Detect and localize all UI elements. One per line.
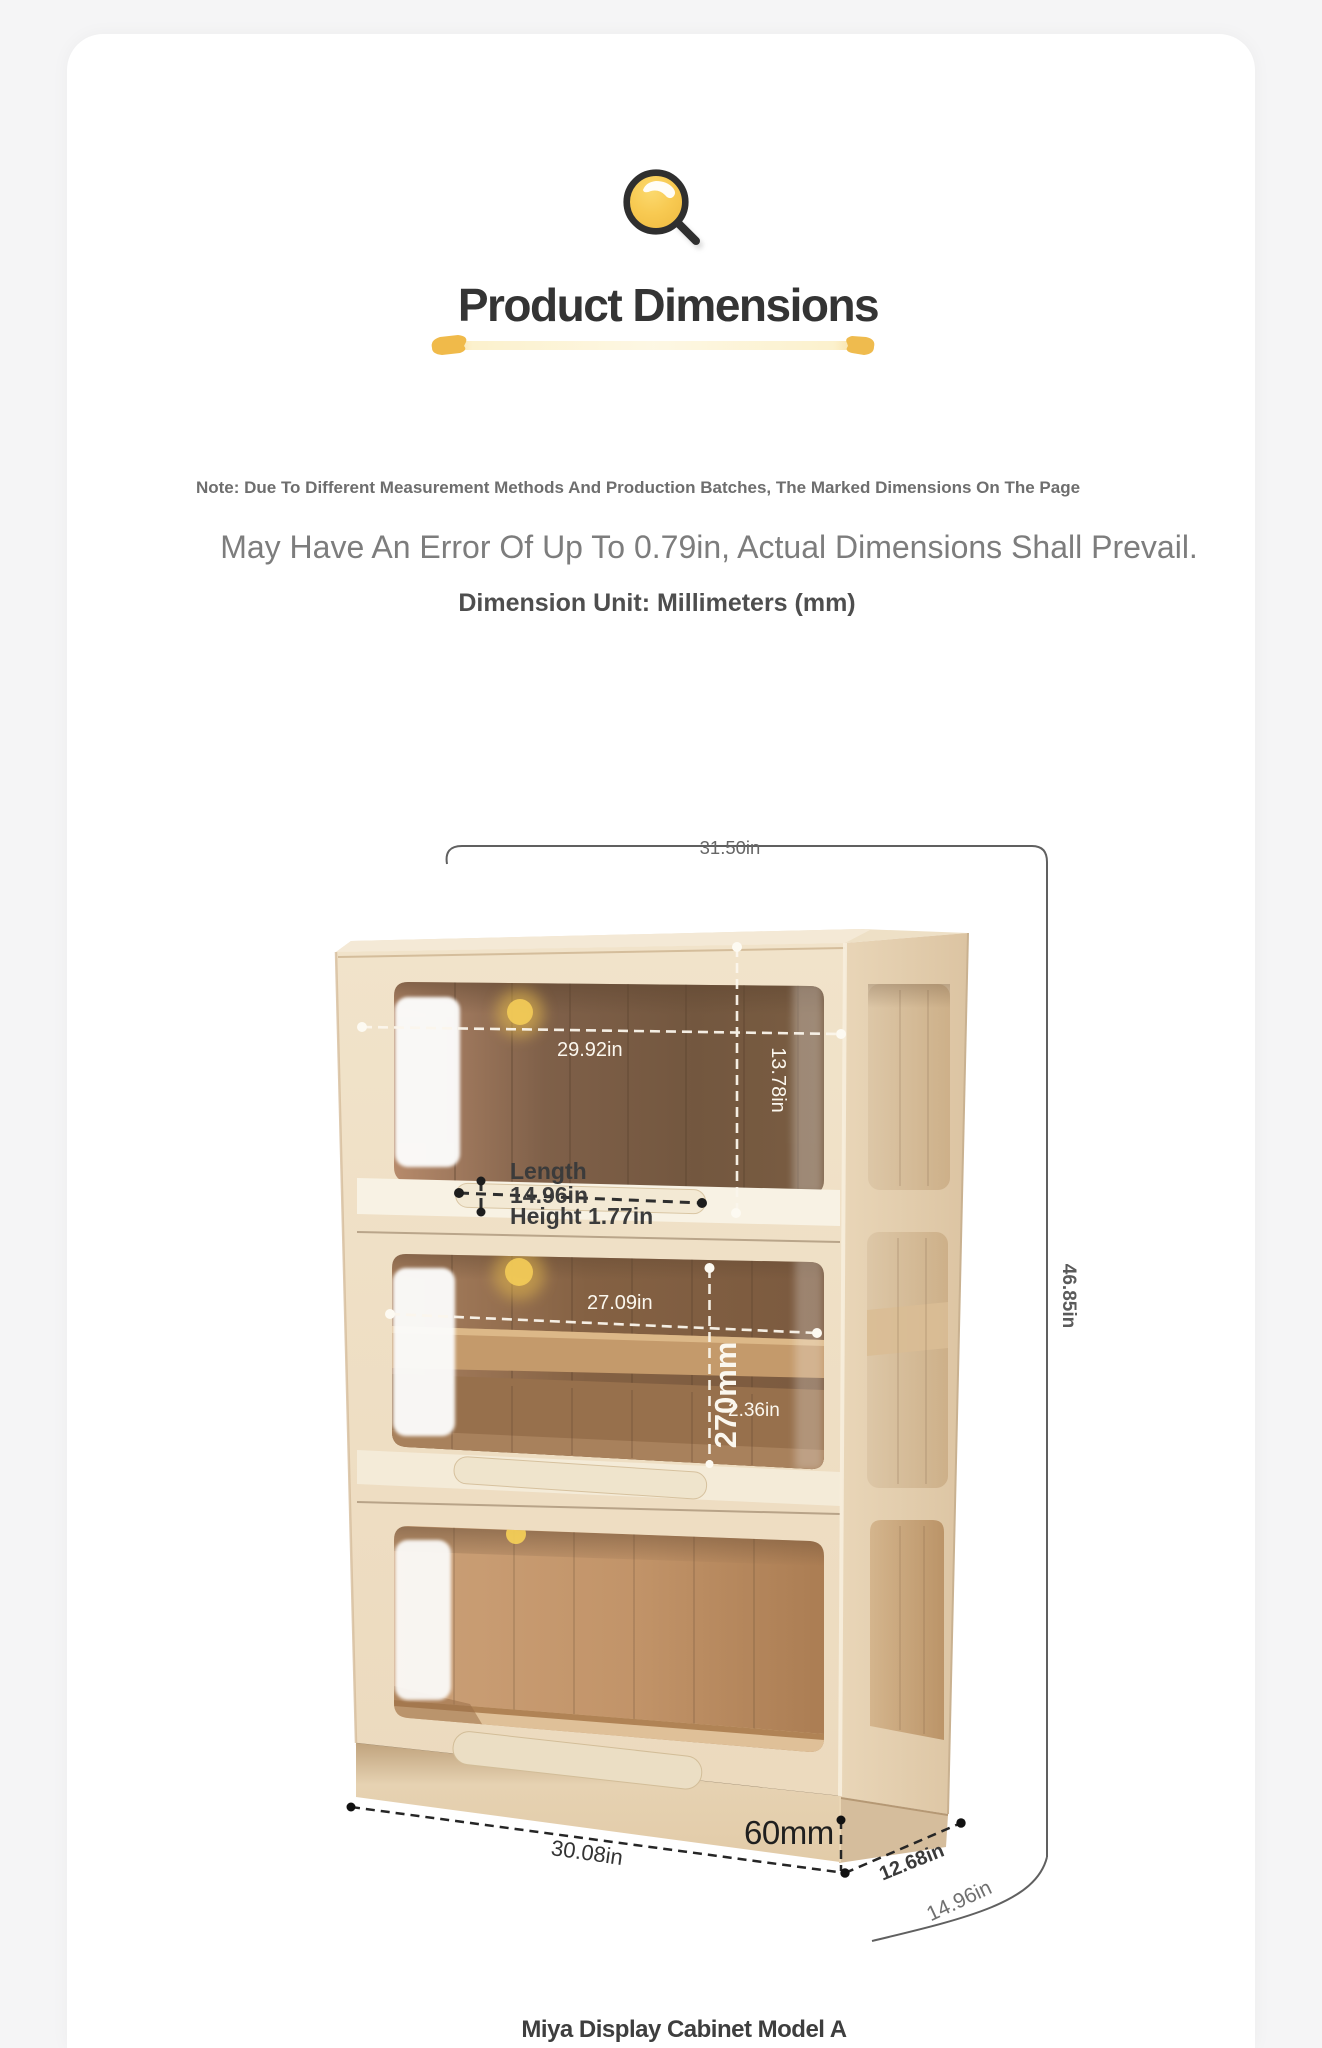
svg-text:30.08in: 30.08in [550,1835,625,1870]
svg-text:29.92in: 29.92in [557,1039,623,1061]
svg-text:270mm: 270mm [708,1342,743,1449]
svg-text:46.85in: 46.85in [1058,1264,1079,1328]
svg-text:Height 1.77in: Height 1.77in [510,1203,653,1229]
svg-text:60mm: 60mm [744,1814,834,1851]
svg-text:31.50in: 31.50in [700,837,761,858]
svg-text:27.09in: 27.09in [587,1292,653,1314]
svg-text:13.78in: 13.78in [767,1047,789,1113]
svg-text:Length: Length [510,1158,587,1184]
